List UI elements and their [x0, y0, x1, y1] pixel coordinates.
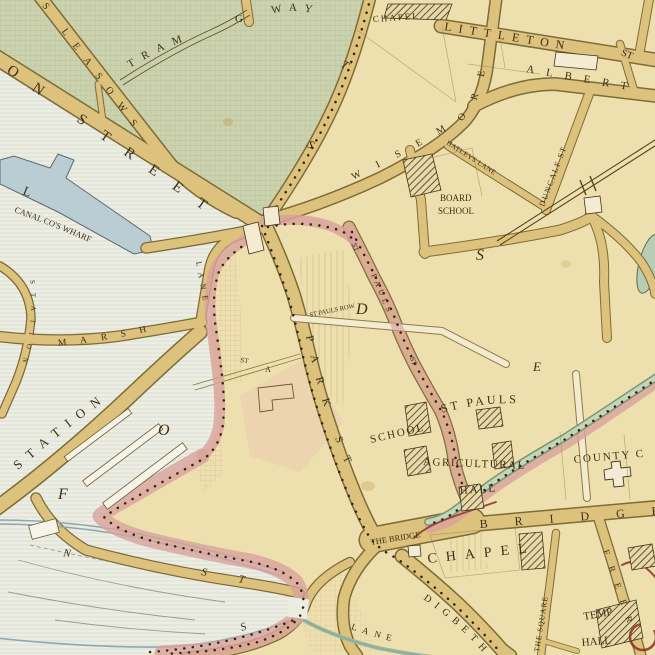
letter-f-big: F: [57, 486, 68, 503]
railway-building: [584, 196, 602, 214]
label-board: BOARD: [440, 193, 472, 203]
age-stain: [561, 260, 571, 268]
bridge-monument: [408, 545, 421, 557]
map-canvas[interactable]: ON STREET S LEASOWS TRAM WAY LITTLETON S…: [0, 0, 655, 655]
letter-g: G: [235, 13, 243, 25]
junction-building-1: [263, 206, 280, 226]
letter-d-big: D: [355, 301, 368, 318]
age-stain: [223, 118, 233, 126]
age-stain: [361, 481, 375, 491]
label-board-school: SCHOOL: [438, 206, 474, 216]
north-east-corner-building: [628, 544, 655, 570]
town-map: ON STREET S LEASOWS TRAM WAY LITTLETON S…: [0, 0, 655, 655]
label-temp-hall: HALL: [581, 634, 612, 649]
letter-s-big: S: [476, 247, 484, 264]
label-a-small: A: [265, 365, 271, 374]
letter-o-big: O: [158, 422, 170, 439]
st-pauls-church-building: [476, 407, 503, 429]
letter-e-big: E: [532, 359, 541, 374]
boundary-gap-box: [287, 597, 310, 620]
